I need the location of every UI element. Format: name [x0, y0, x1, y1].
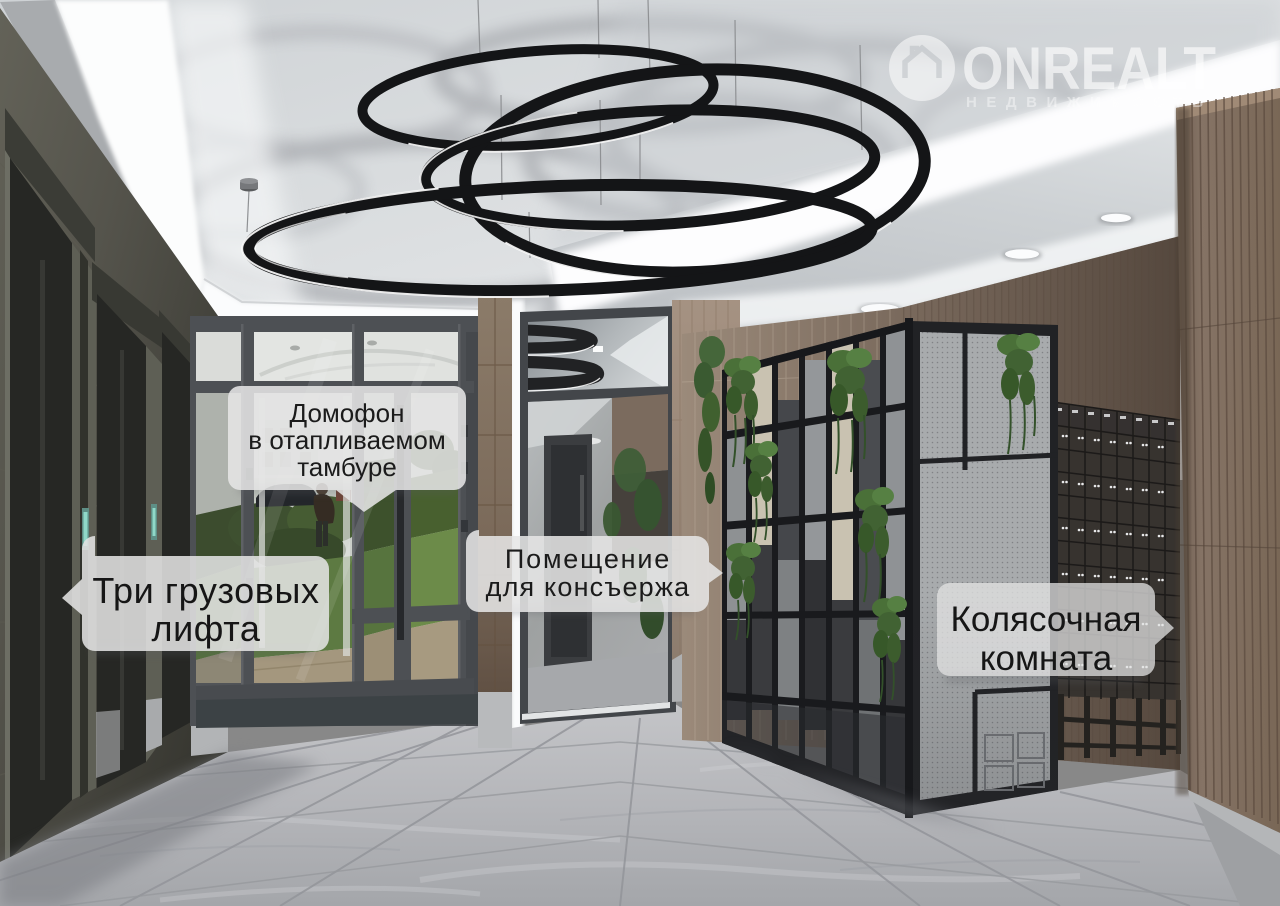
svg-text:комната: комната	[980, 639, 1113, 678]
svg-text:Три грузовых: Три грузовых	[92, 570, 319, 611]
svg-text:Домофон: Домофон	[290, 398, 405, 428]
svg-text:Колясочная: Колясочная	[950, 600, 1141, 639]
svg-text:в отапливаемом: в отапливаемом	[248, 425, 445, 455]
svg-text:тамбуре: тамбуре	[297, 452, 397, 482]
svg-text:для консъержа: для консъержа	[486, 572, 691, 602]
svg-text:Помещение: Помещение	[505, 544, 671, 574]
svg-text:лифта: лифта	[151, 608, 260, 649]
svg-text:ONREALT: ONREALT	[962, 35, 1216, 102]
